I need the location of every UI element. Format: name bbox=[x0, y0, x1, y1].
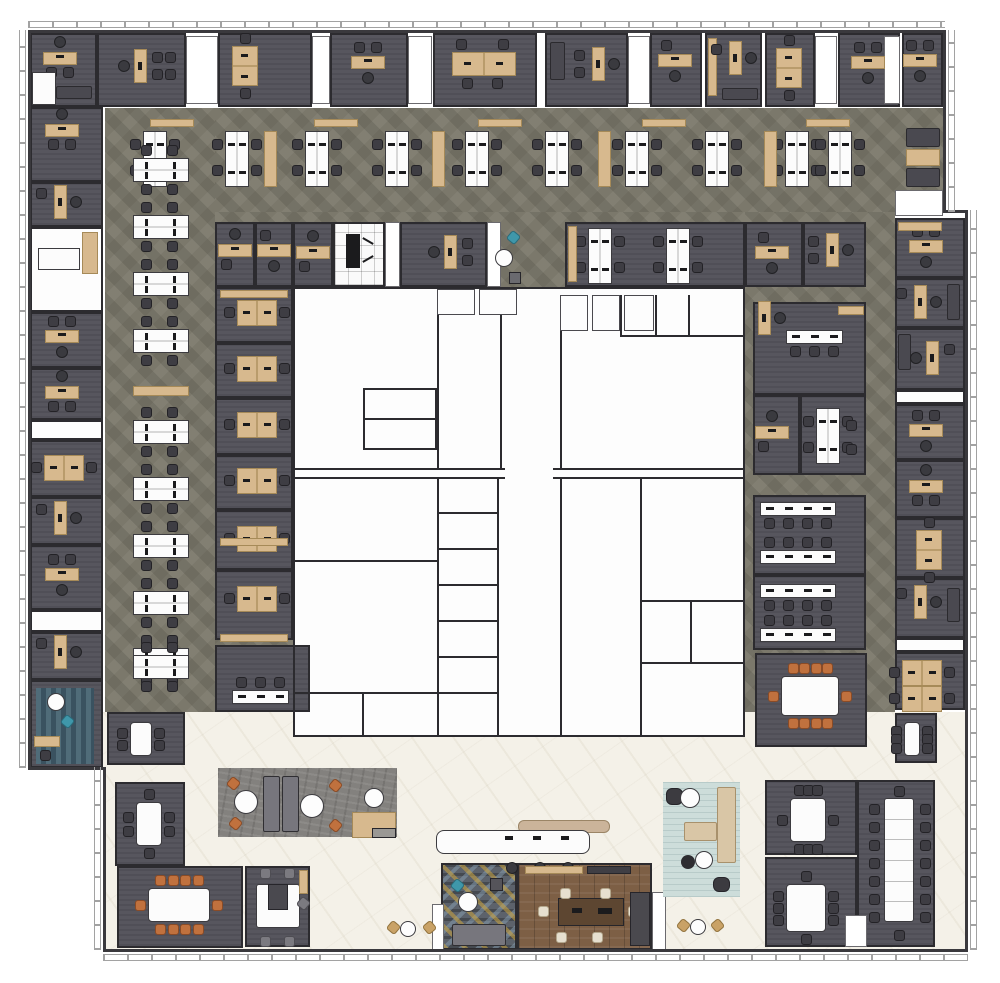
gray-chair bbox=[784, 90, 795, 101]
monitor bbox=[56, 55, 64, 58]
orange-chair bbox=[168, 924, 179, 935]
monitor bbox=[766, 589, 774, 592]
desk bbox=[43, 52, 77, 65]
monitor bbox=[831, 143, 838, 146]
monitor bbox=[823, 589, 831, 592]
gray-chair bbox=[773, 903, 784, 914]
white-furniture bbox=[148, 888, 210, 922]
gray-chair bbox=[889, 693, 900, 704]
monitor bbox=[173, 538, 176, 545]
gray-chair bbox=[574, 67, 585, 78]
monitor bbox=[173, 172, 176, 179]
gray-chair bbox=[167, 184, 178, 195]
cabinet bbox=[268, 884, 288, 910]
monitor bbox=[264, 311, 271, 314]
gray-chair bbox=[912, 410, 923, 421]
gray-chair bbox=[802, 600, 813, 611]
monitor bbox=[58, 198, 62, 206]
desk bbox=[598, 131, 611, 187]
core-wall bbox=[362, 692, 364, 735]
desk bbox=[906, 149, 940, 166]
round-table bbox=[495, 249, 513, 267]
monitor bbox=[145, 424, 148, 431]
orange-chair bbox=[768, 691, 779, 702]
gray-chair bbox=[929, 410, 940, 421]
gray-chair bbox=[920, 894, 931, 905]
pod-divider bbox=[236, 132, 238, 186]
gray-chair bbox=[802, 518, 813, 529]
desk bbox=[903, 54, 937, 67]
pod-divider bbox=[134, 545, 188, 547]
monitor bbox=[228, 171, 235, 174]
gray-chair bbox=[167, 145, 178, 156]
core-wall bbox=[640, 477, 642, 735]
gray-chair bbox=[167, 355, 178, 366]
desk bbox=[45, 568, 79, 581]
exterior-wall bbox=[943, 210, 968, 213]
gray-chair bbox=[906, 40, 917, 51]
monitor bbox=[145, 162, 148, 169]
gray-chair bbox=[141, 407, 152, 418]
monitor bbox=[799, 143, 806, 146]
core-closet bbox=[560, 295, 588, 331]
gray-chair bbox=[224, 593, 235, 604]
desk bbox=[220, 634, 288, 642]
monitor bbox=[173, 424, 176, 431]
monitor bbox=[364, 59, 372, 62]
monitor bbox=[58, 389, 66, 392]
task-chair bbox=[362, 72, 374, 84]
gray-chair bbox=[920, 858, 931, 869]
desk bbox=[478, 119, 522, 127]
gray-chair bbox=[167, 617, 178, 628]
monitor bbox=[804, 633, 812, 636]
gray-chair bbox=[331, 139, 342, 150]
gray-chair bbox=[141, 316, 152, 327]
monitor bbox=[264, 423, 271, 426]
monitor bbox=[145, 343, 148, 350]
pod-divider bbox=[556, 132, 558, 186]
monitor bbox=[602, 240, 609, 243]
door-recess bbox=[312, 36, 330, 104]
monitor bbox=[548, 171, 555, 174]
round-table bbox=[300, 794, 324, 818]
gray-chair bbox=[854, 165, 865, 176]
monitor bbox=[145, 333, 148, 340]
gray-chair bbox=[144, 848, 155, 859]
gray-chair bbox=[167, 407, 178, 418]
pod-divider bbox=[256, 413, 258, 437]
door-recess bbox=[845, 915, 867, 947]
window-mullions bbox=[970, 210, 977, 950]
monitor bbox=[929, 671, 936, 674]
monitor bbox=[864, 59, 872, 62]
gray-chair bbox=[821, 600, 832, 611]
sofa bbox=[898, 334, 911, 370]
monitor bbox=[173, 434, 176, 441]
gray-chair bbox=[141, 202, 152, 213]
gray-chair bbox=[130, 139, 141, 150]
monitor bbox=[145, 434, 148, 441]
desk bbox=[568, 226, 577, 282]
desk bbox=[296, 246, 330, 259]
task-chair bbox=[268, 260, 280, 272]
gray-chair bbox=[783, 537, 794, 548]
monitor bbox=[496, 62, 503, 65]
monitor bbox=[785, 56, 792, 59]
pod-divider bbox=[134, 226, 188, 228]
monitor bbox=[243, 423, 250, 426]
monitor bbox=[231, 247, 239, 250]
monitor bbox=[639, 143, 646, 146]
gray-chair bbox=[828, 891, 839, 902]
pod-divider bbox=[256, 357, 258, 381]
monitor bbox=[71, 466, 78, 469]
core-wall bbox=[690, 600, 692, 662]
desk bbox=[82, 232, 98, 274]
gray-chair bbox=[154, 740, 165, 751]
sofa bbox=[722, 88, 758, 100]
monitor bbox=[669, 268, 676, 271]
monitor bbox=[243, 479, 250, 482]
gray-chair bbox=[48, 316, 59, 327]
monitor bbox=[819, 448, 826, 451]
monitor bbox=[559, 171, 566, 174]
cabinet bbox=[372, 828, 396, 838]
gray-chair bbox=[167, 446, 178, 457]
gray-chair bbox=[224, 419, 235, 430]
gray-chair bbox=[731, 139, 742, 150]
task-chair bbox=[920, 440, 932, 452]
gray-chair bbox=[821, 518, 832, 529]
gray-chair bbox=[869, 858, 880, 869]
monitor bbox=[591, 268, 598, 271]
monitor bbox=[173, 595, 176, 602]
pod-divider bbox=[134, 666, 188, 668]
white-furniture bbox=[130, 722, 152, 756]
gray-chair bbox=[144, 789, 155, 800]
core-wall bbox=[363, 388, 437, 390]
monitor bbox=[308, 143, 315, 146]
orange-chair bbox=[822, 663, 833, 674]
core-wall bbox=[437, 692, 497, 694]
table-line bbox=[885, 881, 913, 882]
gray-chair bbox=[141, 578, 152, 589]
monitor bbox=[238, 695, 246, 698]
cream-chair bbox=[538, 906, 549, 917]
monitor bbox=[792, 335, 800, 338]
core-wall bbox=[553, 468, 745, 470]
desk bbox=[45, 330, 79, 343]
gray-chair bbox=[869, 804, 880, 815]
gray-chair bbox=[165, 52, 176, 63]
monitor bbox=[766, 555, 774, 558]
monitor bbox=[830, 420, 837, 423]
gray-chair bbox=[141, 617, 152, 628]
window-mullions bbox=[103, 954, 968, 961]
sofa bbox=[906, 128, 940, 147]
gray-chair bbox=[924, 517, 935, 528]
monitor bbox=[929, 697, 936, 700]
monitor bbox=[388, 143, 395, 146]
cabinet bbox=[558, 898, 624, 926]
task-chair bbox=[70, 646, 82, 658]
gray-chair bbox=[889, 667, 900, 678]
monitor bbox=[243, 311, 250, 314]
gray-chair bbox=[123, 812, 134, 823]
core-wall bbox=[293, 735, 745, 737]
lgray-chair bbox=[284, 936, 295, 947]
pod-divider bbox=[677, 229, 679, 283]
task-chair bbox=[774, 312, 786, 324]
core-wall bbox=[553, 477, 745, 479]
monitor bbox=[468, 143, 475, 146]
lgray-chair bbox=[260, 936, 271, 947]
task-chair bbox=[118, 60, 130, 72]
desk bbox=[218, 244, 252, 257]
gray-chair bbox=[167, 259, 178, 270]
gray-chair bbox=[614, 262, 625, 273]
gray-chair bbox=[36, 188, 47, 199]
core-wall bbox=[620, 295, 622, 337]
monitor bbox=[788, 143, 795, 146]
gray-chair bbox=[462, 255, 473, 266]
gray-chair bbox=[846, 420, 857, 431]
desk bbox=[314, 119, 358, 127]
monitor bbox=[276, 695, 284, 698]
gray-chair bbox=[65, 316, 76, 327]
monitor bbox=[561, 836, 569, 840]
gray-chair bbox=[141, 355, 152, 366]
monitor bbox=[930, 354, 934, 362]
monitor bbox=[533, 836, 541, 840]
monitor bbox=[145, 595, 148, 602]
round-table bbox=[364, 788, 384, 808]
gray-chair bbox=[224, 363, 235, 374]
orange-chair bbox=[180, 924, 191, 935]
table-line bbox=[885, 839, 913, 840]
gray-chair bbox=[802, 537, 813, 548]
monitor bbox=[239, 171, 246, 174]
gray-chair bbox=[801, 934, 812, 945]
round-table bbox=[400, 921, 416, 937]
orange-chair bbox=[788, 718, 799, 729]
utility-room bbox=[30, 610, 103, 632]
sofa bbox=[906, 168, 940, 187]
gray-chair bbox=[869, 840, 880, 851]
task-chair bbox=[56, 108, 68, 120]
sofa bbox=[947, 284, 960, 320]
task-chair bbox=[428, 246, 440, 258]
gray-chair bbox=[354, 42, 365, 53]
monitor bbox=[173, 669, 176, 676]
monitor bbox=[145, 481, 148, 488]
gray-chair bbox=[456, 39, 467, 50]
monitor bbox=[145, 286, 148, 293]
pod-divider bbox=[134, 488, 188, 490]
monitor bbox=[628, 143, 635, 146]
core-wall bbox=[437, 656, 497, 658]
gray-chair bbox=[260, 230, 271, 241]
core-wall bbox=[437, 477, 439, 735]
window-mullions bbox=[28, 21, 945, 28]
gray-chair bbox=[808, 253, 819, 264]
task-chair bbox=[920, 464, 932, 476]
gray-chair bbox=[251, 139, 262, 150]
gray-chair bbox=[240, 33, 251, 44]
monitor bbox=[464, 62, 471, 65]
pod-divider bbox=[636, 132, 638, 186]
monitor bbox=[468, 171, 475, 174]
monitor bbox=[145, 548, 148, 555]
gray-chair bbox=[869, 876, 880, 887]
gray-chair bbox=[279, 307, 290, 318]
desk bbox=[150, 119, 194, 127]
exterior-wall bbox=[103, 767, 106, 952]
lgray-chair bbox=[284, 868, 295, 879]
orange-chair bbox=[193, 924, 204, 935]
monitor bbox=[228, 143, 235, 146]
gray-chair bbox=[462, 238, 473, 249]
core-closet bbox=[592, 295, 620, 331]
task-chair bbox=[914, 70, 926, 82]
desk bbox=[909, 424, 943, 437]
core-wall bbox=[688, 295, 690, 337]
gray-chair bbox=[164, 812, 175, 823]
gray-chair bbox=[491, 139, 502, 150]
monitor bbox=[842, 171, 849, 174]
monitor bbox=[58, 333, 66, 336]
sofa bbox=[947, 588, 960, 622]
gray-chair bbox=[117, 740, 128, 751]
task-chair bbox=[910, 352, 922, 364]
monitor bbox=[925, 538, 932, 541]
task-chair bbox=[766, 410, 778, 422]
monitor bbox=[58, 514, 62, 522]
pod-divider bbox=[483, 53, 485, 75]
monitor bbox=[831, 171, 838, 174]
desk bbox=[264, 131, 277, 187]
door-recess bbox=[815, 36, 837, 104]
round-table bbox=[234, 790, 258, 814]
pod-divider bbox=[777, 67, 801, 69]
gray-chair bbox=[123, 826, 134, 837]
white-furniture bbox=[904, 722, 920, 756]
monitor bbox=[680, 240, 687, 243]
gray-chair bbox=[869, 822, 880, 833]
pod-divider bbox=[921, 687, 923, 711]
gray-chair bbox=[141, 642, 152, 653]
gray-chair bbox=[279, 593, 290, 604]
monitor bbox=[58, 127, 66, 130]
task-chair bbox=[229, 228, 241, 240]
orange-chair bbox=[180, 875, 191, 886]
gray-chair bbox=[828, 915, 839, 926]
gray-chair bbox=[236, 677, 247, 688]
gray-chair bbox=[758, 441, 769, 452]
monitor bbox=[572, 908, 582, 913]
orange-chair bbox=[811, 718, 822, 729]
window-mullions bbox=[94, 767, 101, 950]
orange-chair bbox=[811, 663, 822, 674]
gray-chair bbox=[692, 165, 703, 176]
task-chair bbox=[669, 70, 681, 82]
cabinet bbox=[630, 892, 650, 946]
monitor bbox=[733, 54, 737, 62]
gray-chair bbox=[141, 184, 152, 195]
monitor bbox=[680, 268, 687, 271]
monitor bbox=[762, 314, 766, 322]
monitor bbox=[908, 697, 915, 700]
core-wall bbox=[620, 335, 745, 337]
monitor bbox=[918, 598, 922, 606]
gray-chair bbox=[944, 693, 955, 704]
gray-chair bbox=[808, 236, 819, 247]
gray-chair bbox=[854, 139, 865, 150]
orange-chair bbox=[193, 875, 204, 886]
gray-chair bbox=[372, 165, 383, 176]
gray-chair bbox=[167, 202, 178, 213]
desk bbox=[34, 736, 60, 747]
orange-chair bbox=[168, 875, 179, 886]
monitor bbox=[173, 276, 176, 283]
monitor bbox=[257, 695, 265, 698]
gray-chair bbox=[452, 165, 463, 176]
white-furniture bbox=[38, 248, 80, 270]
desk bbox=[45, 124, 79, 137]
pod-divider bbox=[316, 132, 318, 186]
gray-chair bbox=[141, 241, 152, 252]
round-table bbox=[458, 892, 478, 912]
gray-chair bbox=[894, 930, 905, 941]
cream-chair bbox=[592, 932, 603, 943]
pod-divider bbox=[134, 431, 188, 433]
office-floor-plan bbox=[0, 0, 1000, 983]
desk bbox=[806, 119, 850, 127]
monitor bbox=[804, 589, 812, 592]
gray-chair bbox=[372, 139, 383, 150]
monitor bbox=[785, 507, 793, 510]
sofa bbox=[684, 822, 717, 841]
monitor bbox=[768, 429, 776, 432]
gray-chair bbox=[653, 236, 664, 247]
monitor bbox=[830, 335, 838, 338]
gray-chair bbox=[167, 503, 178, 514]
gray-chair bbox=[154, 728, 165, 739]
monitor bbox=[785, 589, 793, 592]
gray-chair bbox=[491, 165, 502, 176]
gray-chair bbox=[117, 728, 128, 739]
monitor bbox=[145, 276, 148, 283]
gray-chair bbox=[167, 560, 178, 571]
pod-divider bbox=[716, 132, 718, 186]
monitor bbox=[830, 246, 834, 254]
monitor bbox=[173, 605, 176, 612]
gray-chair bbox=[167, 642, 178, 653]
core-wall bbox=[640, 662, 745, 664]
gray-chair bbox=[612, 139, 623, 150]
gray-chair bbox=[86, 462, 97, 473]
monitor bbox=[145, 491, 148, 498]
sofa bbox=[717, 787, 736, 863]
gray-chair bbox=[812, 785, 823, 796]
pod-divider bbox=[256, 469, 258, 493]
door-recess bbox=[628, 36, 650, 104]
gray-chair bbox=[48, 139, 59, 150]
sofa bbox=[550, 42, 565, 80]
task-chair bbox=[930, 596, 942, 608]
monitor bbox=[785, 555, 793, 558]
